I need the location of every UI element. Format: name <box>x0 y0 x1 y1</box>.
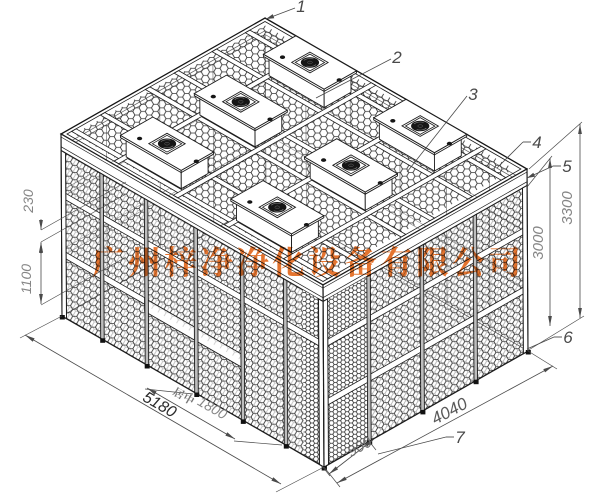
svg-text:2: 2 <box>391 48 402 67</box>
svg-text:230: 230 <box>20 189 36 214</box>
svg-text:5: 5 <box>562 157 572 176</box>
svg-text:6: 6 <box>563 328 573 347</box>
svg-text:1100: 1100 <box>18 264 34 294</box>
svg-text:4: 4 <box>532 133 541 152</box>
svg-text:3000: 3000 <box>530 226 547 260</box>
svg-text:1: 1 <box>296 0 305 16</box>
svg-text:3: 3 <box>468 85 478 104</box>
svg-text:7: 7 <box>455 428 465 447</box>
svg-text:3300: 3300 <box>559 191 576 225</box>
